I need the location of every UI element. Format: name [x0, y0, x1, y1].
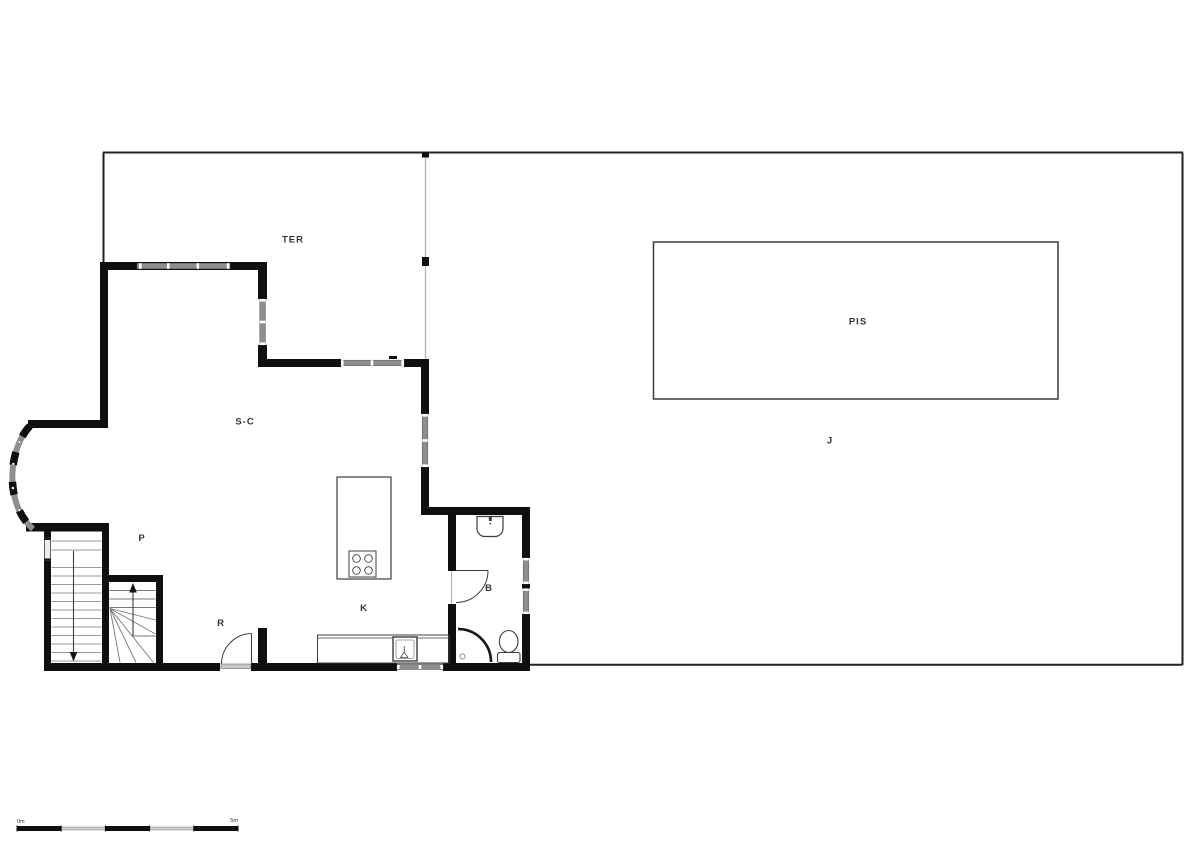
window-mullion: [401, 360, 404, 366]
bay-window-joint: [12, 463, 15, 466]
window-mullion: [523, 558, 529, 560]
floorplan-drawing: TER S-C P R K B PIS J 0m 5m: [0, 0, 1200, 849]
toilet-tank: [498, 653, 521, 663]
door-r-threshold: [221, 664, 251, 669]
staircase-main: [52, 541, 102, 661]
window-mullion: [523, 612, 529, 614]
wall-bay-cap: [26, 523, 109, 532]
kitchen-counter: [318, 635, 450, 663]
shower-drain: [460, 654, 465, 659]
window-mullion: [260, 321, 266, 324]
wall-stair-middle: [102, 532, 109, 664]
label-kitchen: K: [360, 603, 368, 614]
scale-tick: [238, 826, 239, 832]
wall-east-bath-upper: [522, 507, 530, 558]
fixtures: [318, 477, 521, 663]
wall-east-kitchen-upper: [421, 359, 429, 414]
window-bath-lower: [523, 589, 529, 615]
scale-tick: [61, 826, 62, 832]
scale-bar: 0m 5m: [17, 818, 239, 832]
window-stair-west: [45, 538, 51, 561]
floorplan-canvas: TER S-C P R K B PIS J 0m 5m: [0, 0, 1200, 849]
window-mullion: [397, 665, 400, 669]
scale-start-label: 0m: [17, 819, 25, 825]
kitchen-island: [337, 477, 391, 579]
bay-window-joint: [18, 441, 21, 444]
window-mullion: [341, 360, 344, 366]
label-pool: PIS: [849, 317, 867, 328]
scale-segment-gray: [150, 827, 194, 830]
bathroom-faucet-dot: [489, 523, 491, 525]
window-cap: [45, 559, 51, 561]
window-mullion: [419, 665, 422, 669]
wall-east-living-upper: [258, 262, 267, 299]
site-boundary: [103, 153, 1183, 666]
window-north-living: [137, 263, 230, 269]
door-b-swing: [456, 571, 488, 603]
door-r-swing: [222, 634, 252, 665]
window-mullion: [440, 665, 443, 669]
window-cap: [45, 538, 51, 540]
window-mullion: [227, 263, 230, 269]
window-mullion: [260, 299, 266, 302]
room-labels: TER S-C P R K B PIS J: [138, 235, 867, 630]
scale-segment-black: [194, 826, 238, 831]
wall-stair-top: [109, 575, 156, 582]
toilet-bowl: [499, 631, 518, 653]
arrow-down-head: [70, 652, 78, 662]
bathroom-faucet: [489, 517, 492, 522]
divider-tick-top: [422, 153, 429, 158]
window-mullion: [371, 360, 374, 366]
wall-stair-right: [156, 575, 163, 664]
window-mullion: [167, 263, 170, 269]
wall-south-b: [251, 663, 397, 671]
wall-south-a: [44, 663, 220, 671]
scale-tick: [17, 826, 18, 832]
window-mullion: [422, 414, 428, 417]
label-bathroom: B: [485, 583, 493, 594]
label-landing: P: [138, 533, 145, 544]
wall-stub-hall: [258, 628, 267, 666]
wall-north-bath: [421, 507, 530, 515]
windows: [45, 263, 529, 669]
wall-south-c: [443, 663, 530, 671]
window-mullion: [523, 582, 529, 584]
scale-segment-black: [17, 826, 61, 831]
scale-segment-gray: [61, 827, 105, 830]
wall-east-bath-mid: [522, 584, 530, 589]
window-mullion: [139, 263, 142, 269]
window-mullion: [523, 589, 529, 591]
wall-east-bath-lower: [522, 614, 530, 671]
house-walls: [26, 153, 530, 672]
arrow-up-head: [129, 583, 137, 593]
wall-west-upper: [100, 262, 108, 422]
scale-tick: [105, 826, 106, 832]
label-terrace: TER: [282, 235, 304, 246]
wall-step-west: [28, 420, 108, 428]
winder-line: [110, 609, 120, 663]
window-marker-tick: [389, 356, 397, 359]
scale-segment-black: [105, 826, 149, 831]
scale-tick: [193, 826, 194, 832]
label-garden: J: [827, 436, 833, 447]
wall-north-kitchen-w: [258, 359, 341, 367]
window-mullion: [260, 342, 266, 345]
bay-window: [12, 426, 33, 529]
window-bath-upper: [523, 558, 529, 584]
window-mullion: [197, 263, 200, 269]
wall-west-bath-upper: [448, 515, 456, 571]
scale-tick: [149, 826, 150, 832]
divider-tick-mid: [422, 257, 429, 266]
label-hall: R: [217, 618, 225, 629]
label-living-dining: S-C: [235, 417, 254, 428]
bay-window-joint: [18, 509, 21, 512]
window-mullion: [422, 464, 428, 467]
window-mullion: [422, 439, 428, 442]
scale-end-label: 5m: [230, 818, 238, 824]
bay-window-joint: [12, 487, 15, 490]
